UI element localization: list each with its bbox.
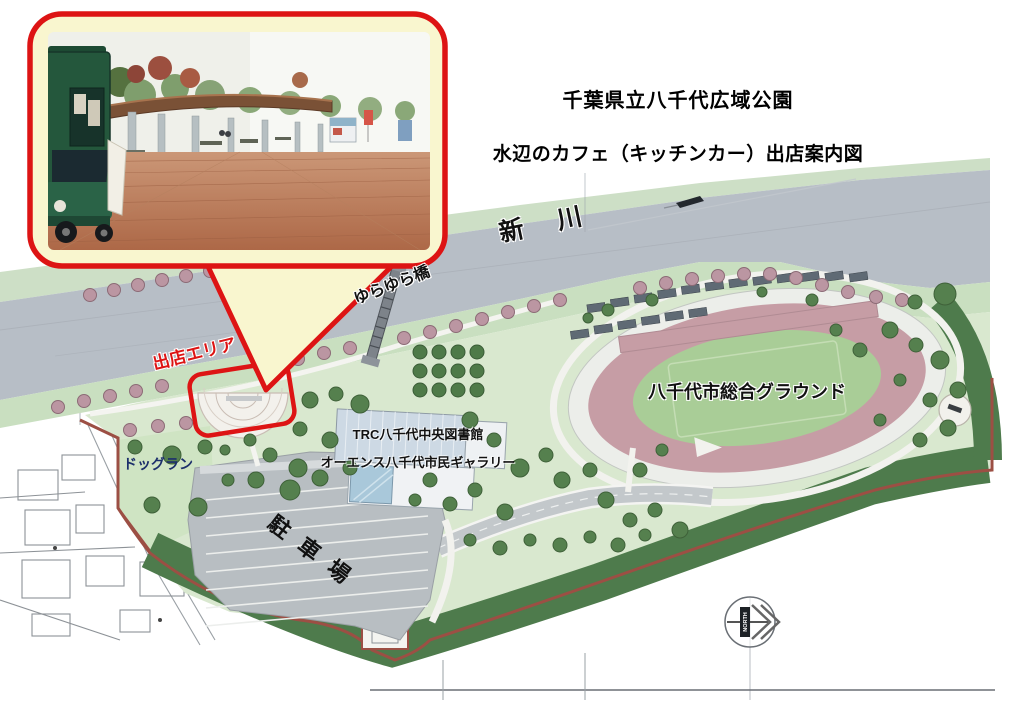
tree xyxy=(639,529,651,541)
library-label: TRC八千代中央図書館 オーエンス八千代市民ギャラリー xyxy=(318,424,518,480)
page-title: 千葉県立八千代広域公園 xyxy=(486,84,870,113)
tree xyxy=(611,538,625,552)
tree xyxy=(198,440,212,454)
tree xyxy=(244,434,256,446)
tree xyxy=(413,364,427,378)
tree xyxy=(646,294,658,306)
tree xyxy=(78,395,91,408)
tree xyxy=(913,433,927,447)
tree xyxy=(220,445,230,455)
tree xyxy=(493,541,507,555)
tree xyxy=(409,494,421,506)
tree xyxy=(470,345,484,359)
tree xyxy=(598,492,614,508)
tree xyxy=(553,538,567,552)
tree xyxy=(130,385,143,398)
tree xyxy=(52,401,65,414)
tree xyxy=(398,332,411,345)
tree xyxy=(132,279,145,292)
tree xyxy=(874,414,886,426)
tree xyxy=(144,497,160,513)
tree xyxy=(280,480,300,500)
tree xyxy=(451,345,465,359)
tree xyxy=(476,313,489,326)
tree xyxy=(738,268,751,281)
tree xyxy=(156,380,169,393)
tree xyxy=(554,472,570,488)
tree xyxy=(351,395,369,413)
title-block: 千葉県立八千代広域公園 水辺のカフェ（キッチンカー）出店案内図 xyxy=(486,84,870,166)
tree xyxy=(344,342,357,355)
tree xyxy=(180,270,193,283)
tree xyxy=(623,513,637,527)
tree xyxy=(908,295,922,309)
page-subtitle: 水辺のカフェ（キッチンカー）出店案内図 xyxy=(486,139,870,166)
tree xyxy=(712,270,725,283)
tree xyxy=(468,483,482,497)
tree xyxy=(432,345,446,359)
north-label: NORTH xyxy=(743,612,749,632)
tree xyxy=(940,420,956,436)
tree xyxy=(152,420,165,433)
tree xyxy=(222,474,234,486)
ground-label: 八千代市総合グラウンド xyxy=(648,383,846,401)
tree xyxy=(189,498,207,516)
tree xyxy=(451,364,465,378)
tree xyxy=(790,272,803,285)
tree xyxy=(451,383,465,397)
tree xyxy=(934,283,956,305)
tree xyxy=(584,531,596,543)
tree xyxy=(539,448,553,462)
tree xyxy=(764,268,777,281)
tree xyxy=(329,387,343,401)
tree xyxy=(870,291,883,304)
tree xyxy=(424,326,437,339)
tree xyxy=(318,347,331,360)
tree xyxy=(104,390,117,403)
tree xyxy=(413,383,427,397)
tree xyxy=(931,351,949,369)
tree xyxy=(502,306,515,319)
tree xyxy=(554,294,567,307)
tree xyxy=(464,534,476,546)
tree xyxy=(413,345,427,359)
tree xyxy=(84,289,97,302)
library-label-line2: オーエンス八千代市民ギャラリー xyxy=(318,452,518,471)
tree xyxy=(470,383,484,397)
tree xyxy=(497,504,513,520)
tree xyxy=(656,444,668,456)
tree xyxy=(672,522,688,538)
tree xyxy=(602,304,614,316)
page: NORTH xyxy=(0,0,1024,724)
tree xyxy=(909,338,923,352)
tree xyxy=(450,320,463,333)
photo-kitchen-car-scene xyxy=(44,32,430,250)
tree xyxy=(806,294,818,306)
tree xyxy=(830,324,842,336)
tree xyxy=(289,459,307,477)
tree xyxy=(757,287,767,297)
tree xyxy=(528,300,541,313)
dog-run-label: ドッグラン xyxy=(123,457,193,471)
tree xyxy=(853,343,867,357)
tree xyxy=(950,382,966,398)
tree xyxy=(263,448,277,462)
tree xyxy=(124,424,137,437)
tree xyxy=(443,497,457,511)
tree xyxy=(180,417,193,430)
tree xyxy=(432,383,446,397)
tree xyxy=(156,274,169,287)
tree xyxy=(470,364,484,378)
tree xyxy=(634,282,647,295)
library-label-line1: TRC八千代中央図書館 xyxy=(318,424,518,443)
tree xyxy=(686,273,699,286)
tree xyxy=(894,374,906,386)
tree xyxy=(293,422,307,436)
tree xyxy=(108,284,121,297)
tree xyxy=(923,393,937,407)
tree xyxy=(882,322,898,338)
tree xyxy=(583,313,593,323)
tree xyxy=(816,279,829,292)
tree xyxy=(583,463,597,477)
tree xyxy=(842,286,855,299)
tree xyxy=(128,440,142,454)
tree xyxy=(524,534,536,546)
tree xyxy=(432,364,446,378)
tree xyxy=(660,277,673,290)
tree xyxy=(896,294,909,307)
tree xyxy=(648,503,662,517)
tree xyxy=(248,472,264,488)
tree xyxy=(302,392,318,408)
tree xyxy=(633,463,647,477)
